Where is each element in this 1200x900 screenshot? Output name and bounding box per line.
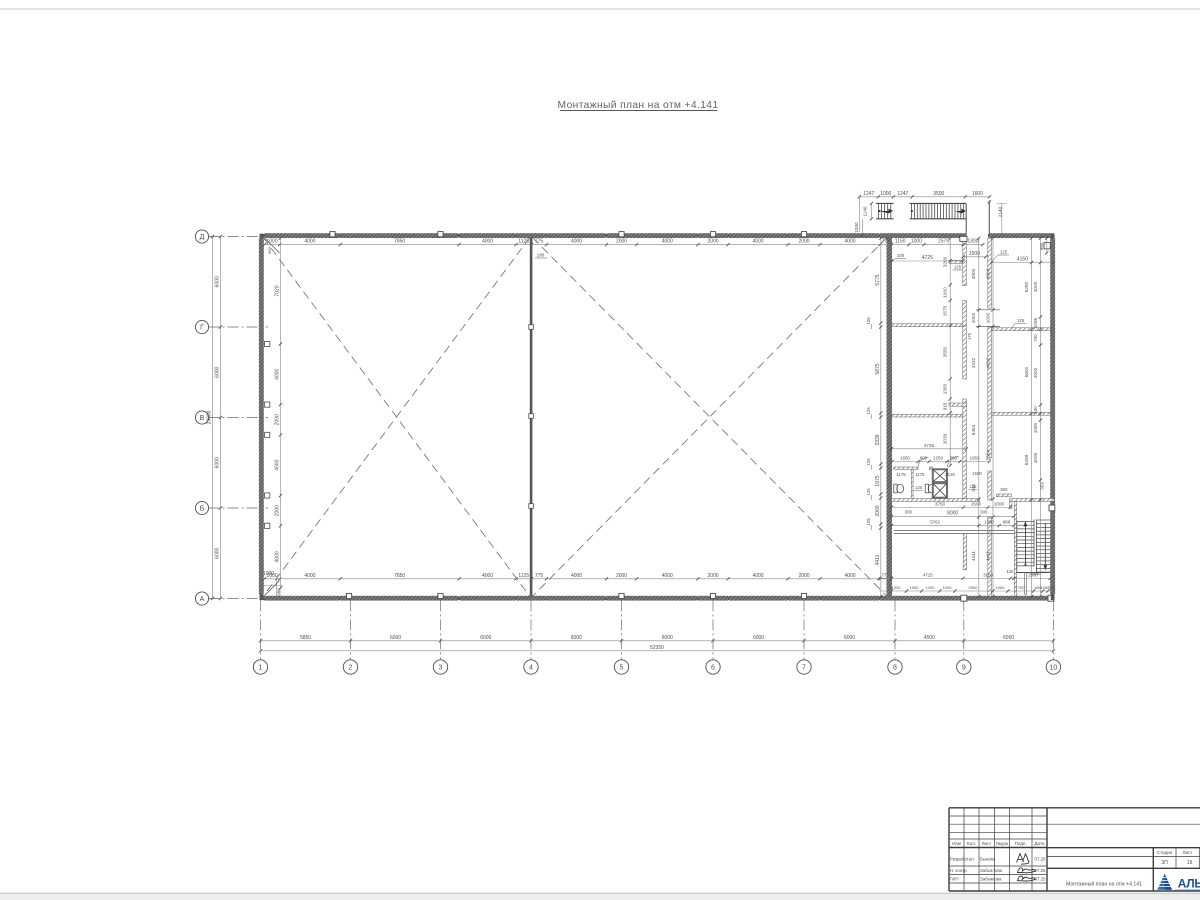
svg-text:1125: 1125 <box>518 573 529 579</box>
svg-text:2000: 2000 <box>707 573 718 579</box>
svg-text:1000: 1000 <box>880 191 891 197</box>
svg-text:Лист: Лист <box>1183 850 1194 855</box>
svg-text:19: 19 <box>1187 860 1193 866</box>
svg-text:1000: 1000 <box>996 585 1006 590</box>
svg-text:1350: 1350 <box>984 520 994 525</box>
svg-text:6000: 6000 <box>215 547 221 558</box>
svg-text:5: 5 <box>620 665 624 672</box>
svg-text:6000: 6000 <box>215 366 221 377</box>
svg-text:5850: 5850 <box>300 635 311 641</box>
svg-text:1175: 1175 <box>915 472 925 477</box>
svg-text:3550: 3550 <box>943 346 948 357</box>
svg-text:6000: 6000 <box>844 635 855 641</box>
svg-text:125: 125 <box>1000 250 1008 255</box>
svg-text:1350: 1350 <box>943 383 948 394</box>
svg-text:1650: 1650 <box>900 455 910 460</box>
svg-text:6000: 6000 <box>215 457 221 468</box>
svg-text:125: 125 <box>915 485 923 490</box>
svg-text:3750: 3750 <box>935 502 946 507</box>
svg-text:5464: 5464 <box>971 424 976 435</box>
svg-text:700: 700 <box>1033 334 1038 342</box>
svg-text:6000: 6000 <box>215 276 221 287</box>
svg-text:775: 775 <box>881 572 889 577</box>
svg-text:7020: 7020 <box>275 285 281 296</box>
svg-text:1000: 1000 <box>911 239 922 245</box>
svg-text:№док: №док <box>996 841 1009 846</box>
svg-text:3500: 3500 <box>933 191 944 197</box>
svg-text:125: 125 <box>866 488 871 496</box>
svg-text:строительная компания: строительная компания <box>1175 889 1200 892</box>
svg-text:ЗП: ЗП <box>1161 860 1168 866</box>
svg-text:6000: 6000 <box>753 635 764 641</box>
svg-text:180: 180 <box>537 253 545 258</box>
svg-text:4000: 4000 <box>482 573 493 579</box>
svg-text:4000: 4000 <box>1033 281 1038 292</box>
svg-text:1250: 1250 <box>933 455 943 460</box>
svg-text:4000: 4000 <box>662 573 673 579</box>
svg-text:4000: 4000 <box>275 551 281 562</box>
svg-text:4411: 4411 <box>985 551 990 561</box>
svg-text:980: 980 <box>267 246 272 253</box>
svg-text:1140: 1140 <box>863 206 868 216</box>
svg-text:Дата: Дата <box>1034 841 1045 846</box>
svg-text:300: 300 <box>905 509 913 514</box>
svg-text:6280: 6280 <box>1024 281 1029 292</box>
svg-text:5600: 5600 <box>1024 366 1029 377</box>
svg-text:2000: 2000 <box>275 414 281 425</box>
svg-text:125: 125 <box>1017 318 1025 323</box>
svg-text:1200: 1200 <box>926 585 936 590</box>
svg-text:4000: 4000 <box>1033 367 1038 378</box>
svg-text:9: 9 <box>962 665 966 672</box>
svg-text:В: В <box>200 415 205 422</box>
svg-text:6000: 6000 <box>1003 635 1014 641</box>
svg-text:1600: 1600 <box>972 191 983 197</box>
svg-text:125: 125 <box>866 317 871 325</box>
svg-text:Забьякова: Забьякова <box>980 877 1002 882</box>
svg-text:1500: 1500 <box>971 502 982 507</box>
svg-text:1000: 1000 <box>910 585 920 590</box>
svg-text:125: 125 <box>954 265 962 270</box>
svg-text:4332: 4332 <box>971 357 976 368</box>
svg-text:1000: 1000 <box>854 222 859 233</box>
svg-text:175: 175 <box>967 332 972 340</box>
svg-text:915: 915 <box>943 402 948 410</box>
svg-text:Монтажный план на отм +4.141: Монтажный план на отм +4.141 <box>1066 880 1142 887</box>
svg-text:4000: 4000 <box>752 239 763 245</box>
svg-text:125: 125 <box>970 484 978 489</box>
svg-text:2125: 2125 <box>945 472 955 477</box>
svg-text:4: 4 <box>529 665 533 672</box>
svg-text:6000: 6000 <box>662 635 673 641</box>
svg-text:3150: 3150 <box>983 572 993 577</box>
svg-text:5762: 5762 <box>930 520 940 525</box>
svg-text:4000: 4000 <box>1033 452 1038 463</box>
svg-text:1950: 1950 <box>970 455 980 460</box>
svg-text:ГИП: ГИП <box>950 877 959 882</box>
svg-text:5775: 5775 <box>875 274 881 285</box>
svg-text:4000: 4000 <box>304 239 315 245</box>
svg-text:4000: 4000 <box>275 369 281 380</box>
svg-text:2575: 2575 <box>938 239 949 245</box>
svg-text:800: 800 <box>950 455 958 460</box>
svg-text:1000: 1000 <box>943 287 948 298</box>
svg-text:4725: 4725 <box>922 255 933 261</box>
svg-text:4000: 4000 <box>275 459 281 470</box>
svg-text:1175: 1175 <box>896 472 906 477</box>
svg-text:1975: 1975 <box>875 475 881 486</box>
svg-text:1000: 1000 <box>943 585 953 590</box>
svg-text:2000: 2000 <box>875 505 881 516</box>
svg-text:1095: 1095 <box>1033 317 1038 328</box>
svg-text:Стадия: Стадия <box>1157 850 1173 855</box>
svg-text:4725: 4725 <box>923 572 933 577</box>
svg-text:07.25: 07.25 <box>1035 868 1047 873</box>
svg-text:2000: 2000 <box>275 505 281 516</box>
svg-text:Кол.: Кол. <box>967 841 976 846</box>
svg-text:4000: 4000 <box>304 573 315 579</box>
svg-text:775: 775 <box>535 239 544 245</box>
svg-text:3200: 3200 <box>943 256 948 267</box>
svg-text:1247: 1247 <box>897 191 908 197</box>
svg-text:07.25: 07.25 <box>1035 877 1047 882</box>
svg-text:980: 980 <box>276 588 281 596</box>
svg-text:1247: 1247 <box>863 191 874 197</box>
svg-text:7850: 7850 <box>394 239 405 245</box>
svg-text:10: 10 <box>1050 665 1058 672</box>
svg-text:1125: 1125 <box>518 239 529 245</box>
svg-text:4000: 4000 <box>844 573 855 579</box>
svg-text:2500: 2500 <box>1031 571 1041 576</box>
svg-text:52350: 52350 <box>650 645 664 651</box>
svg-text:1000: 1000 <box>994 502 1005 507</box>
svg-text:3339: 3339 <box>875 434 881 445</box>
svg-text:6000: 6000 <box>571 635 582 641</box>
svg-text:07.25: 07.25 <box>1035 856 1047 861</box>
svg-text:2039: 2039 <box>943 433 948 444</box>
svg-text:Монтажный план на отм +4.141: Монтажный план на отм +4.141 <box>558 100 719 111</box>
svg-text:Забьялова: Забьялова <box>980 868 1003 873</box>
svg-text:820: 820 <box>1033 406 1038 414</box>
svg-text:1000: 1000 <box>263 571 274 577</box>
svg-text:Разработал: Разработал <box>950 856 974 861</box>
svg-text:780: 780 <box>1048 585 1055 590</box>
svg-text:4000: 4000 <box>844 239 855 245</box>
svg-text:Н. контр: Н. контр <box>950 868 967 873</box>
svg-text:125: 125 <box>1007 569 1015 574</box>
svg-text:1700: 1700 <box>1016 585 1026 590</box>
svg-text:775: 775 <box>535 573 544 579</box>
svg-text:980: 980 <box>1039 242 1044 250</box>
svg-text:4500: 4500 <box>924 635 935 641</box>
svg-text:А: А <box>200 596 205 603</box>
svg-text:7: 7 <box>802 665 806 672</box>
svg-text:775: 775 <box>882 239 891 245</box>
svg-text:4900: 4900 <box>971 268 976 279</box>
svg-text:1150: 1150 <box>895 239 906 245</box>
svg-text:1080: 1080 <box>1033 422 1038 433</box>
svg-text:888: 888 <box>1003 520 1011 525</box>
svg-text:Д: Д <box>200 234 205 241</box>
svg-text:2000: 2000 <box>616 239 627 245</box>
svg-text:4000: 4000 <box>662 239 673 245</box>
svg-text:4411: 4411 <box>875 554 881 565</box>
svg-text:5875: 5875 <box>875 363 881 374</box>
svg-text:Б: Б <box>200 505 205 512</box>
svg-text:4000: 4000 <box>571 573 582 579</box>
svg-text:5564: 5564 <box>985 449 990 460</box>
svg-text:1500: 1500 <box>972 471 982 476</box>
svg-text:4150: 4150 <box>1017 257 1028 263</box>
svg-text:Лист: Лист <box>982 841 993 846</box>
svg-text:Подп.: Подп. <box>1015 841 1027 846</box>
svg-text:2500: 2500 <box>969 585 979 590</box>
svg-text:7850: 7850 <box>394 573 405 579</box>
svg-text:6: 6 <box>711 665 715 672</box>
svg-text:2000: 2000 <box>798 573 809 579</box>
svg-text:Изм: Изм <box>952 841 961 846</box>
svg-text:1575: 1575 <box>943 305 948 316</box>
svg-text:4411: 4411 <box>971 551 976 561</box>
svg-text:2000: 2000 <box>707 239 718 245</box>
svg-text:125: 125 <box>866 518 871 526</box>
svg-text:2000: 2000 <box>616 573 627 579</box>
svg-text:1: 1 <box>259 665 263 672</box>
svg-text:4000: 4000 <box>482 239 493 245</box>
svg-text:350: 350 <box>1000 487 1008 492</box>
svg-text:Г: Г <box>200 324 204 331</box>
svg-text:1000: 1000 <box>971 312 976 323</box>
svg-text:3: 3 <box>439 665 443 672</box>
svg-text:359: 359 <box>1040 482 1045 490</box>
svg-text:6000: 6000 <box>390 635 401 641</box>
svg-text:2000: 2000 <box>798 239 809 245</box>
svg-text:4900: 4900 <box>985 268 990 279</box>
svg-text:125: 125 <box>866 458 871 466</box>
svg-text:6000: 6000 <box>480 635 491 641</box>
svg-text:1320: 1320 <box>892 585 902 590</box>
svg-text:300: 300 <box>980 509 988 514</box>
svg-text:4000: 4000 <box>571 239 582 245</box>
svg-text:1000: 1000 <box>985 312 990 323</box>
svg-text:5439: 5439 <box>1024 454 1029 465</box>
svg-text:125: 125 <box>866 407 871 415</box>
svg-text:4725: 4725 <box>924 443 935 448</box>
svg-text:2: 2 <box>349 665 353 672</box>
svg-text:Быкова: Быкова <box>980 856 996 861</box>
svg-text:100: 100 <box>897 253 905 258</box>
svg-text:4632: 4632 <box>985 357 990 368</box>
svg-text:8: 8 <box>893 665 897 672</box>
svg-text:800: 800 <box>920 455 928 460</box>
svg-text:8000: 8000 <box>947 510 958 516</box>
svg-text:4000: 4000 <box>752 573 763 579</box>
